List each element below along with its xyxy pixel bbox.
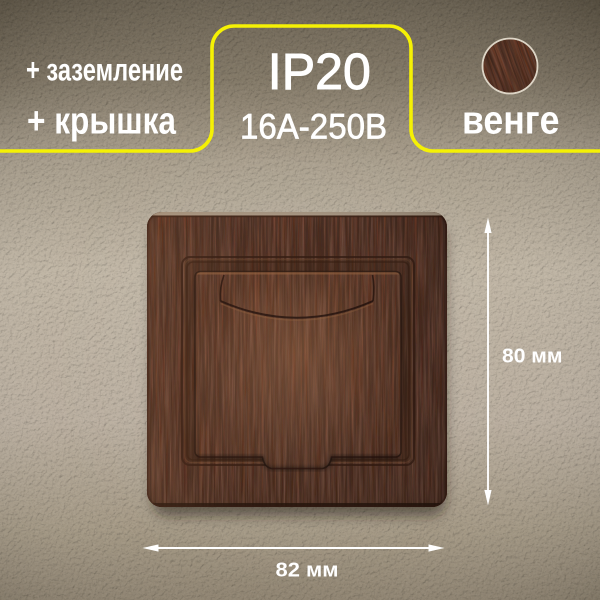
- svg-text:80 мм: 80 мм: [502, 346, 563, 368]
- svg-text:16А-250В: 16А-250В: [240, 107, 387, 146]
- svg-text:+ заземление: + заземление: [26, 53, 183, 88]
- svg-text:82 мм: 82 мм: [276, 560, 339, 582]
- svg-text:IP20: IP20: [268, 43, 371, 100]
- svg-text:венге: венге: [462, 99, 560, 143]
- svg-text:+ крышка: + крышка: [27, 101, 177, 143]
